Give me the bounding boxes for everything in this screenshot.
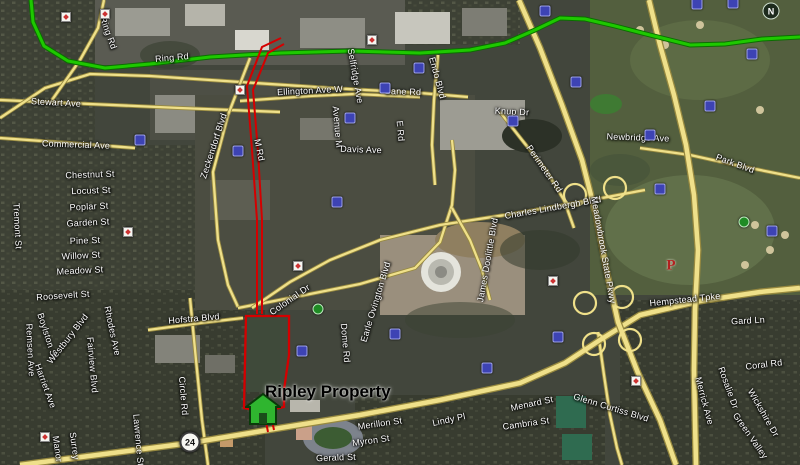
crossing-sign-icon[interactable] [235, 85, 245, 95]
street-label: Hempstead Tpke [649, 292, 721, 308]
satellite-map[interactable]: Ring RdRing RdStewart AveCommercial AveZ… [0, 0, 800, 465]
poi-icon[interactable] [571, 77, 582, 88]
street-label: Gard Ln [731, 316, 765, 327]
street-label: Myron St [352, 434, 390, 448]
poi-icon[interactable] [332, 197, 343, 208]
crossing-sign-icon[interactable] [61, 12, 71, 22]
park-poi-icon[interactable] [313, 304, 324, 315]
street-label: Endo Blvd [427, 56, 447, 100]
parking-icon: P [666, 258, 675, 275]
street-label: Perimeter Rd [524, 144, 563, 195]
street-label: Coral Rd [745, 358, 783, 371]
street-label: Circle Rd [177, 376, 189, 415]
poi-icon[interactable] [553, 332, 564, 343]
street-label: Harriet Ave [33, 363, 57, 410]
poi-icon[interactable] [747, 49, 758, 60]
street-label: Meadow St [56, 265, 103, 276]
street-label: Garden St [66, 217, 109, 228]
poi-icon[interactable] [135, 135, 146, 146]
crossing-sign-icon[interactable] [40, 432, 50, 442]
street-label: Zeckendorf Blvd [199, 112, 229, 179]
street-label: Glenn Curtiss Blvd [572, 392, 649, 423]
street-label: Lawrence St [131, 414, 145, 465]
street-label: Surrey [68, 432, 81, 461]
street-label: Charles Lindbergh Blvd [504, 195, 602, 221]
north-compass-icon: N [763, 3, 780, 20]
poi-icon[interactable] [390, 329, 401, 340]
street-label: M Rd [252, 138, 265, 162]
poi-icon[interactable] [705, 101, 716, 112]
street-label: Ring Rd [98, 16, 118, 51]
street-label: Chestnut St [65, 170, 115, 181]
street-label: Stewart Ave [31, 97, 81, 109]
street-label: James Doolittle Blvd [476, 217, 500, 303]
poi-icon[interactable] [767, 226, 778, 237]
street-label: Davis Ave [340, 145, 382, 155]
poi-icon[interactable] [540, 6, 551, 17]
labels-layer: Ring RdRing RdStewart AveCommercial AveZ… [0, 0, 800, 465]
street-label: Avenue M [331, 106, 344, 149]
crossing-sign-icon[interactable] [367, 35, 377, 45]
poi-icon[interactable] [233, 146, 244, 157]
street-label: Hofstra Blvd [168, 312, 220, 325]
crossing-sign-icon[interactable] [293, 261, 303, 271]
ripley-house-icon[interactable] [245, 393, 281, 425]
street-label: Commercial Ave [42, 139, 110, 150]
crossing-sign-icon[interactable] [548, 276, 558, 286]
street-label: Menard St [510, 395, 554, 413]
street-label: Rosalie Dr [716, 366, 740, 410]
poi-icon[interactable] [655, 184, 666, 195]
poi-icon[interactable] [508, 116, 519, 127]
street-label: Lindy Pl [432, 412, 467, 428]
crossing-sign-icon[interactable] [631, 376, 641, 386]
park-poi-icon[interactable] [739, 217, 750, 228]
street-label: Selfridge Ave [346, 48, 364, 104]
street-label: Pine St [70, 236, 101, 246]
street-label: Roosevelt St [36, 290, 90, 303]
crossing-sign-icon[interactable] [100, 9, 110, 19]
street-label: Manor [51, 435, 64, 463]
street-label: Willow St [61, 250, 100, 261]
street-label: Colonial Dr [268, 283, 311, 317]
poi-icon[interactable] [414, 63, 425, 74]
street-label: Dome Rd [339, 323, 351, 363]
poi-icon[interactable] [482, 363, 493, 374]
street-label: Meadowbrook State Pkwy [589, 196, 617, 304]
street-label: Locust St [71, 186, 111, 196]
street-label: E Rd [395, 120, 406, 142]
poi-icon[interactable] [380, 83, 391, 94]
street-label: Merrick Ave [693, 376, 714, 426]
poi-icon[interactable] [645, 130, 656, 141]
street-label: Fairview Blvd [85, 337, 99, 394]
street-label: Merillon St [357, 416, 403, 431]
street-label: Poplar St [69, 201, 108, 212]
route-24-shield: 24 [180, 432, 201, 453]
poi-icon[interactable] [345, 113, 356, 124]
poi-icon[interactable] [728, 0, 739, 9]
property-title: Ripley Property [265, 382, 391, 402]
street-label: Gerald St [316, 453, 356, 463]
street-label: Ellington Ave W [277, 85, 343, 97]
street-label: Cambria St [502, 416, 550, 431]
poi-icon[interactable] [297, 346, 308, 357]
crossing-sign-icon[interactable] [123, 227, 133, 237]
street-label: Earle Ovington Blvd [360, 261, 393, 343]
street-label: Rhodes Ave [102, 305, 121, 356]
poi-icon[interactable] [692, 0, 703, 10]
street-label: Newbridge Ave [606, 132, 669, 143]
street-label: Park Blvd [715, 153, 756, 175]
street-label: Tremont St [11, 203, 22, 250]
street-label: Ring Rd [155, 52, 190, 64]
